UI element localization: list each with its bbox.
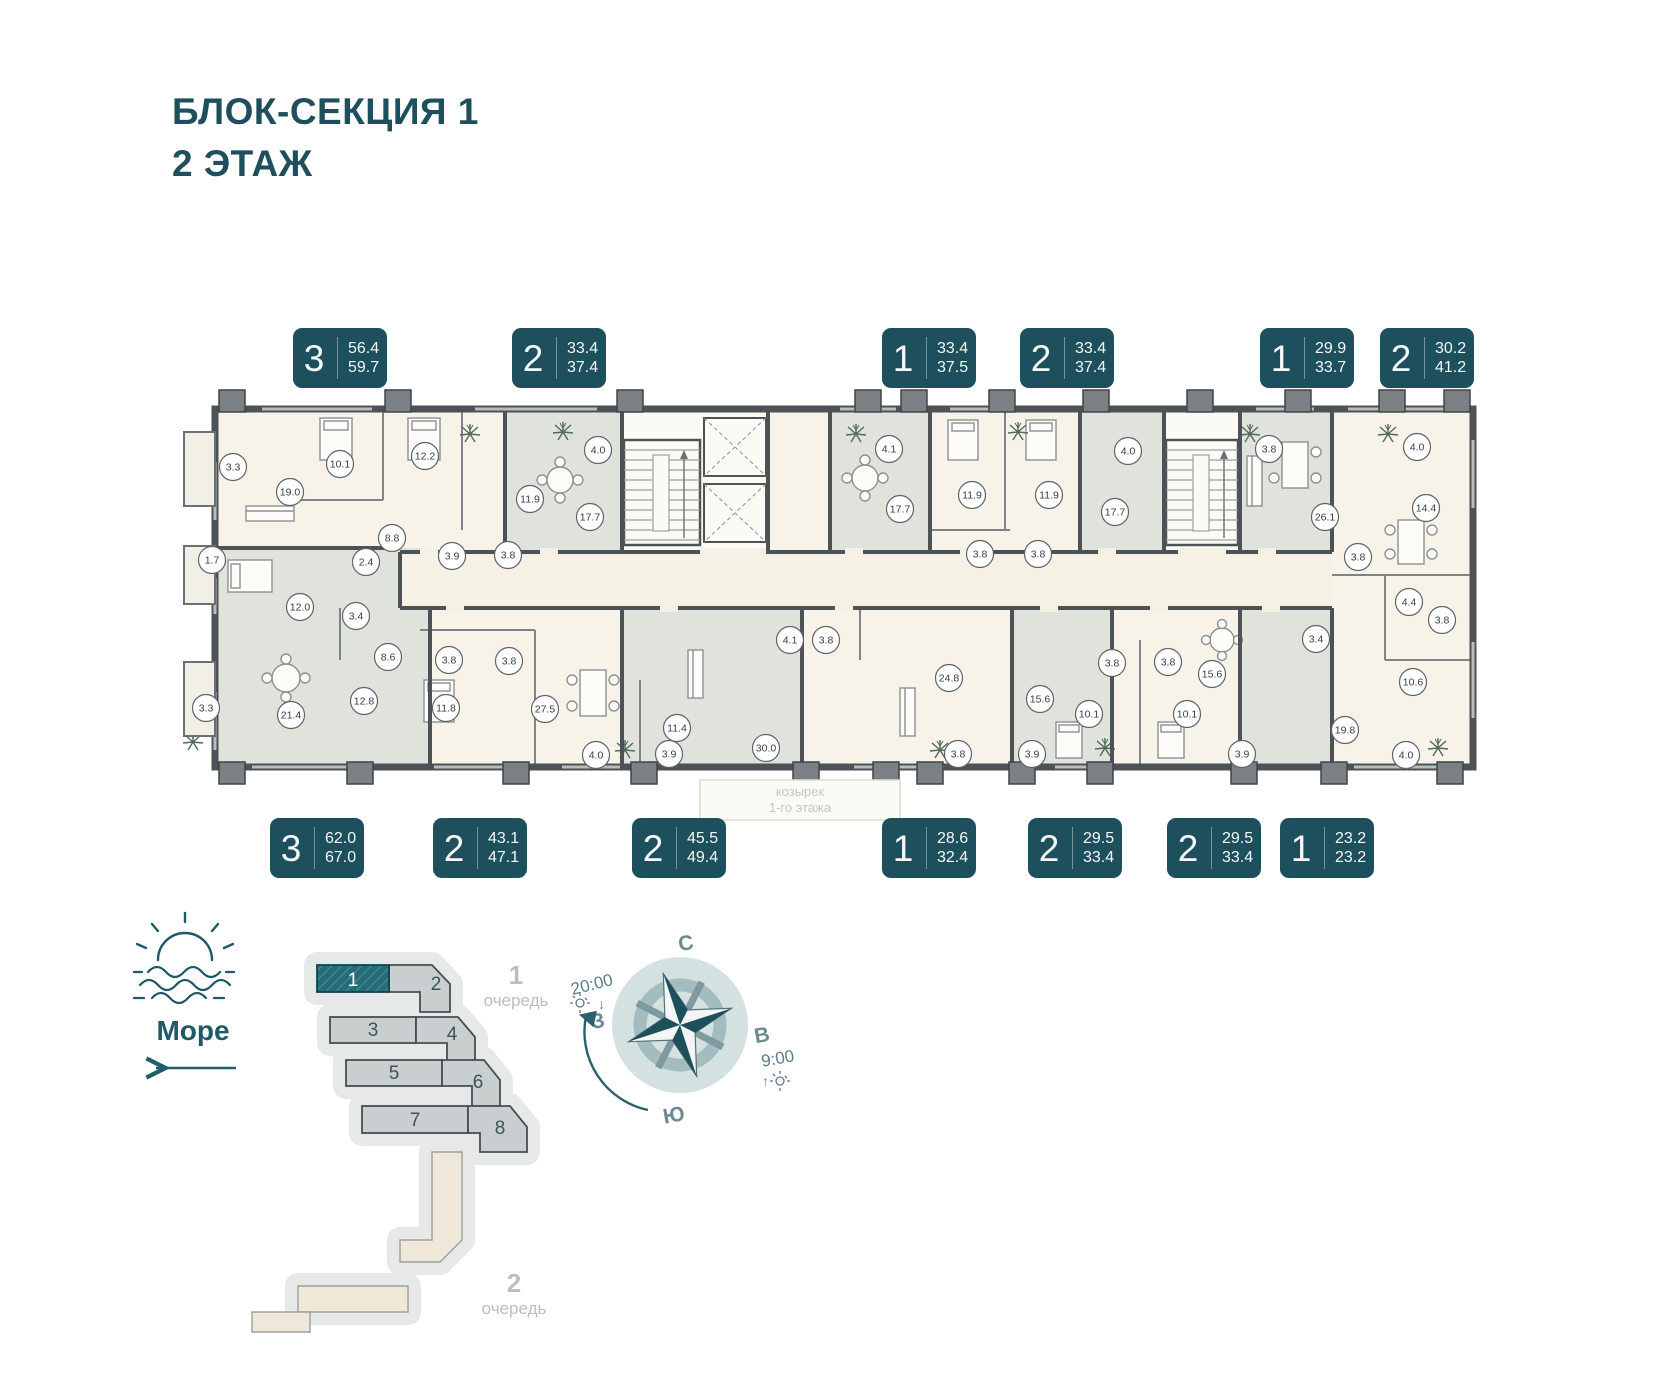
site-building-number-6: 6 bbox=[473, 1072, 484, 1093]
phase1-word: очередь bbox=[484, 991, 549, 1010]
apartment-areas: 29.533.4 bbox=[1211, 827, 1253, 869]
apartment-tag-top-3[interactable]: 133.437.5 bbox=[882, 328, 976, 388]
svg-text:3.8: 3.8 bbox=[973, 549, 988, 561]
sunrise-arrow: ↑ bbox=[762, 1073, 769, 1089]
svg-text:27.5: 27.5 bbox=[535, 704, 556, 716]
room-area-label: 3.9 bbox=[1229, 741, 1256, 768]
svg-text:3.4: 3.4 bbox=[349, 611, 364, 623]
svg-text:10.1: 10.1 bbox=[1177, 709, 1198, 721]
svg-text:12.0: 12.0 bbox=[290, 602, 311, 614]
compass-east: В bbox=[752, 1023, 771, 1048]
svg-text:10.1: 10.1 bbox=[330, 459, 351, 471]
svg-text:17.7: 17.7 bbox=[1105, 507, 1126, 519]
svg-text:4.0: 4.0 bbox=[589, 750, 604, 762]
room-area-label: 4.1 bbox=[876, 436, 903, 463]
room-area-label: 4.0 bbox=[585, 437, 612, 464]
room-area-label: 17.7 bbox=[577, 504, 604, 531]
room-area-label: 21.4 bbox=[278, 702, 305, 729]
svg-text:3.8: 3.8 bbox=[502, 656, 517, 668]
room-count: 2 bbox=[1167, 830, 1209, 867]
apartment-tag-bottom-1[interactable]: 362.067.0 bbox=[270, 818, 364, 878]
svg-text:26.1: 26.1 bbox=[1315, 512, 1336, 524]
apartment-areas: 33.437.4 bbox=[556, 337, 598, 379]
canopy-note-line2: 1-го этажа bbox=[769, 800, 832, 815]
svg-text:24.8: 24.8 bbox=[939, 673, 960, 685]
room-area-label: 4.1 bbox=[777, 627, 804, 654]
svg-text:4.0: 4.0 bbox=[1410, 442, 1425, 454]
room-area-label: 8.6 bbox=[375, 644, 402, 671]
room-area-label: 19.8 bbox=[1332, 717, 1359, 744]
site-building-number-3: 3 bbox=[368, 1020, 379, 1041]
svg-text:4.1: 4.1 bbox=[882, 444, 897, 456]
sun-over-sea-icon bbox=[134, 913, 234, 1003]
svg-text:4.0: 4.0 bbox=[591, 445, 606, 457]
apartment-areas: 23.223.2 bbox=[1324, 827, 1366, 869]
room-area-label: 3.4 bbox=[1303, 626, 1330, 653]
svg-text:19.8: 19.8 bbox=[1335, 725, 1356, 737]
svg-text:11.4: 11.4 bbox=[667, 723, 687, 735]
apartment-areas: 43.147.1 bbox=[477, 827, 519, 869]
svg-text:3.8: 3.8 bbox=[442, 655, 457, 667]
room-area-label: 3.8 bbox=[813, 627, 840, 654]
apartment-tag-bottom-5[interactable]: 229.533.4 bbox=[1028, 818, 1122, 878]
svg-text:19.0: 19.0 bbox=[280, 487, 301, 499]
svg-text:3.9: 3.9 bbox=[445, 551, 460, 563]
sunset-marker: 20:00 ↓ bbox=[569, 970, 615, 1013]
svg-text:11.9: 11.9 bbox=[1039, 490, 1059, 502]
apartment-areas: 45.549.4 bbox=[676, 827, 718, 869]
apartment-areas: 62.067.0 bbox=[314, 827, 356, 869]
room-area-label: 19.0 bbox=[277, 479, 304, 506]
apartment-areas: 56.459.7 bbox=[337, 337, 379, 379]
room-area-label: 8.8 bbox=[379, 525, 406, 552]
room-area-label: 17.7 bbox=[1102, 499, 1129, 526]
canopy-note-line1: козырек bbox=[776, 784, 825, 799]
room-count: 1 bbox=[1280, 830, 1322, 867]
phase1-number: 1 bbox=[509, 960, 523, 990]
site-building-number-7: 7 bbox=[410, 1110, 421, 1131]
room-area-label: 3.8 bbox=[1099, 650, 1126, 677]
site-building-number-8: 8 bbox=[495, 1118, 506, 1139]
apartment-areas: 33.437.4 bbox=[1064, 337, 1106, 379]
apartment-tag-bottom-7[interactable]: 123.223.2 bbox=[1280, 818, 1374, 878]
svg-text:3.3: 3.3 bbox=[199, 703, 214, 715]
room-area-label: 12.8 bbox=[351, 688, 378, 715]
room-area-label: 27.5 bbox=[532, 696, 559, 723]
room-count: 2 bbox=[1380, 340, 1422, 377]
room-area-label: 11.4 bbox=[664, 715, 691, 742]
sea-direction: Море bbox=[134, 913, 236, 1068]
apartment-tag-bottom-4[interactable]: 128.632.4 bbox=[882, 818, 976, 878]
room-area-label: 17.7 bbox=[887, 496, 914, 523]
room-area-label: 14.4 bbox=[1413, 495, 1440, 522]
svg-text:15.6: 15.6 bbox=[1202, 669, 1223, 681]
room-count: 1 bbox=[882, 830, 924, 867]
svg-text:21.4: 21.4 bbox=[281, 710, 302, 722]
room-count: 1 bbox=[882, 340, 924, 377]
room-area-label: 3.8 bbox=[436, 647, 463, 674]
apartment-tag-top-4[interactable]: 233.437.4 bbox=[1020, 328, 1114, 388]
room-area-label: 4.0 bbox=[1115, 438, 1142, 465]
site-building-number-1: 1 bbox=[348, 970, 359, 991]
room-area-label: 3.8 bbox=[967, 541, 994, 568]
room-area-label: 10.1 bbox=[1174, 701, 1201, 728]
room-area-label: 3.8 bbox=[495, 542, 522, 569]
room-count: 2 bbox=[433, 830, 475, 867]
svg-text:4.0: 4.0 bbox=[1121, 446, 1136, 458]
site-building-number-2: 2 bbox=[431, 974, 442, 995]
room-area-label: 3.8 bbox=[1345, 544, 1372, 571]
svg-text:3.8: 3.8 bbox=[1435, 615, 1450, 627]
room-area-label: 3.3 bbox=[193, 695, 220, 722]
svg-text:30.0: 30.0 bbox=[756, 743, 777, 755]
room-area-label: 3.9 bbox=[439, 543, 466, 570]
svg-text:3.8: 3.8 bbox=[1105, 658, 1120, 670]
svg-text:3.9: 3.9 bbox=[662, 749, 677, 761]
room-count: 1 bbox=[1260, 340, 1302, 377]
compass-west: З bbox=[589, 1009, 606, 1034]
apartment-tag-bottom-2[interactable]: 243.147.1 bbox=[433, 818, 527, 878]
room-area-label: 12.0 bbox=[287, 594, 314, 621]
room-area-label: 11.9 bbox=[959, 482, 986, 509]
apartment-tag-top-2[interactable]: 233.437.4 bbox=[512, 328, 606, 388]
svg-text:11.9: 11.9 bbox=[962, 490, 982, 502]
room-area-label: 3.8 bbox=[1429, 607, 1456, 634]
svg-text:4.1: 4.1 bbox=[783, 635, 798, 647]
room-area-label: 11.8 bbox=[433, 695, 460, 722]
site-building-number-5: 5 bbox=[389, 1063, 400, 1084]
room-area-label: 3.8 bbox=[1256, 436, 1283, 463]
room-area-label: 15.6 bbox=[1027, 686, 1054, 713]
apartment-areas: 33.437.5 bbox=[926, 337, 968, 379]
svg-text:3.8: 3.8 bbox=[1351, 552, 1366, 564]
room-area-label: 10.1 bbox=[327, 451, 354, 478]
room-count: 3 bbox=[293, 340, 335, 377]
svg-text:17.7: 17.7 bbox=[580, 512, 601, 524]
balconies bbox=[184, 432, 215, 736]
floor-plan-page: БЛОК-СЕКЦИЯ 1 2 ЭТАЖ bbox=[0, 0, 1680, 1383]
room-area-label: 15.6 bbox=[1199, 661, 1226, 688]
room-area-label: 3.8 bbox=[1155, 649, 1182, 676]
apartment-tag-bottom-3[interactable]: 245.549.4 bbox=[632, 818, 726, 878]
svg-text:11.8: 11.8 bbox=[436, 703, 456, 715]
room-area-label: 11.9 bbox=[517, 486, 544, 513]
room-count: 2 bbox=[512, 340, 554, 377]
apartment-areas: 30.241.2 bbox=[1424, 337, 1466, 379]
apartment-areas: 29.933.7 bbox=[1304, 337, 1346, 379]
room-area-label: 10.6 bbox=[1400, 669, 1427, 696]
room-area-label: 4.0 bbox=[583, 742, 610, 769]
site-building-number-4: 4 bbox=[447, 1024, 458, 1045]
svg-text:3.8: 3.8 bbox=[819, 635, 834, 647]
apartment-areas: 29.533.4 bbox=[1072, 827, 1114, 869]
svg-text:17.7: 17.7 bbox=[890, 504, 911, 516]
room-area-label: 3.9 bbox=[656, 741, 683, 768]
apartment-tag-top-5[interactable]: 129.933.7 bbox=[1260, 328, 1354, 388]
room-area-label: 3.8 bbox=[496, 648, 523, 675]
room-area-label: 4.4 bbox=[1396, 589, 1423, 616]
room-count: 2 bbox=[1028, 830, 1070, 867]
room-area-label: 24.8 bbox=[936, 665, 963, 692]
room-area-label: 4.0 bbox=[1404, 434, 1431, 461]
corridor bbox=[400, 552, 1332, 608]
svg-text:10.6: 10.6 bbox=[1403, 677, 1424, 689]
sunset-arrow: ↓ bbox=[598, 996, 605, 1012]
svg-text:3.8: 3.8 bbox=[951, 749, 966, 761]
svg-text:10.1: 10.1 bbox=[1079, 709, 1100, 721]
svg-text:3.8: 3.8 bbox=[1161, 657, 1176, 669]
room-area-label: 3.8 bbox=[1025, 541, 1052, 568]
room-area-label: 4.0 bbox=[1393, 742, 1420, 769]
canopy-note: козырек 1-го этажа bbox=[700, 780, 900, 820]
room-area-label: 30.0 bbox=[753, 735, 780, 762]
stair-core-2 bbox=[1164, 409, 1240, 552]
svg-text:11.9: 11.9 bbox=[520, 494, 540, 506]
sunrise-time: 9:00 bbox=[760, 1046, 796, 1070]
room-area-label: 11.9 bbox=[1036, 482, 1063, 509]
room-area-label: 3.4 bbox=[343, 603, 370, 630]
svg-text:12.2: 12.2 bbox=[415, 451, 436, 463]
room-area-label: 3.8 bbox=[945, 741, 972, 768]
room-area-label: 2.4 bbox=[353, 549, 380, 576]
svg-text:8.8: 8.8 bbox=[385, 533, 400, 545]
room-count: 2 bbox=[632, 830, 674, 867]
phase2-word: очередь bbox=[482, 1299, 547, 1318]
room-count: 3 bbox=[270, 830, 312, 867]
sunrise-marker: 9:00 ↑ bbox=[760, 1046, 796, 1091]
building-floorplan: козырек 1-го этажа 3.319.010.18.82.412.2… bbox=[183, 390, 1473, 820]
svg-text:8.6: 8.6 bbox=[381, 652, 396, 664]
apartment-tag-bottom-6[interactable]: 229.533.4 bbox=[1167, 818, 1261, 878]
svg-text:3.9: 3.9 bbox=[1235, 749, 1250, 761]
svg-text:4.0: 4.0 bbox=[1399, 750, 1414, 762]
svg-text:1.7: 1.7 bbox=[205, 555, 220, 567]
svg-text:3.4: 3.4 bbox=[1309, 634, 1324, 646]
room-area-label: 3.3 bbox=[220, 454, 247, 481]
apartment-areas: 28.632.4 bbox=[926, 827, 968, 869]
floor-plan-canvas: козырек 1-го этажа 3.319.010.18.82.412.2… bbox=[0, 0, 1680, 1383]
apartment-tag-top-6[interactable]: 230.241.2 bbox=[1380, 328, 1474, 388]
svg-text:3.9: 3.9 bbox=[1025, 749, 1040, 761]
room-area-label: 10.1 bbox=[1076, 701, 1103, 728]
svg-text:12.8: 12.8 bbox=[354, 696, 375, 708]
sunset-time: 20:00 bbox=[569, 970, 615, 999]
compass-north: С bbox=[676, 931, 695, 956]
svg-text:3.8: 3.8 bbox=[501, 550, 516, 562]
svg-text:4.4: 4.4 bbox=[1402, 597, 1417, 609]
room-area-label: 1.7 bbox=[199, 547, 226, 574]
phase2-number: 2 bbox=[507, 1268, 521, 1298]
svg-text:15.6: 15.6 bbox=[1030, 694, 1051, 706]
site-plan: 12345678 1 очередь 2 очередь bbox=[252, 960, 548, 1332]
sea-label: Море bbox=[156, 1015, 229, 1046]
compass-south: Ю bbox=[661, 1102, 686, 1128]
svg-text:3.8: 3.8 bbox=[1262, 444, 1277, 456]
svg-text:3.8: 3.8 bbox=[1031, 549, 1046, 561]
svg-text:14.4: 14.4 bbox=[1416, 503, 1437, 515]
svg-text:3.3: 3.3 bbox=[226, 462, 241, 474]
room-count: 2 bbox=[1020, 340, 1062, 377]
svg-text:2.4: 2.4 bbox=[359, 557, 374, 569]
compass-rose: С В Ю З 20:00 ↓ 9:00 ↑ bbox=[569, 931, 796, 1129]
room-area-label: 12.2 bbox=[412, 443, 439, 470]
room-area-label: 26.1 bbox=[1312, 504, 1339, 531]
room-area-label: 3.9 bbox=[1019, 741, 1046, 768]
apartment-tag-top-1[interactable]: 356.459.7 bbox=[293, 328, 387, 388]
